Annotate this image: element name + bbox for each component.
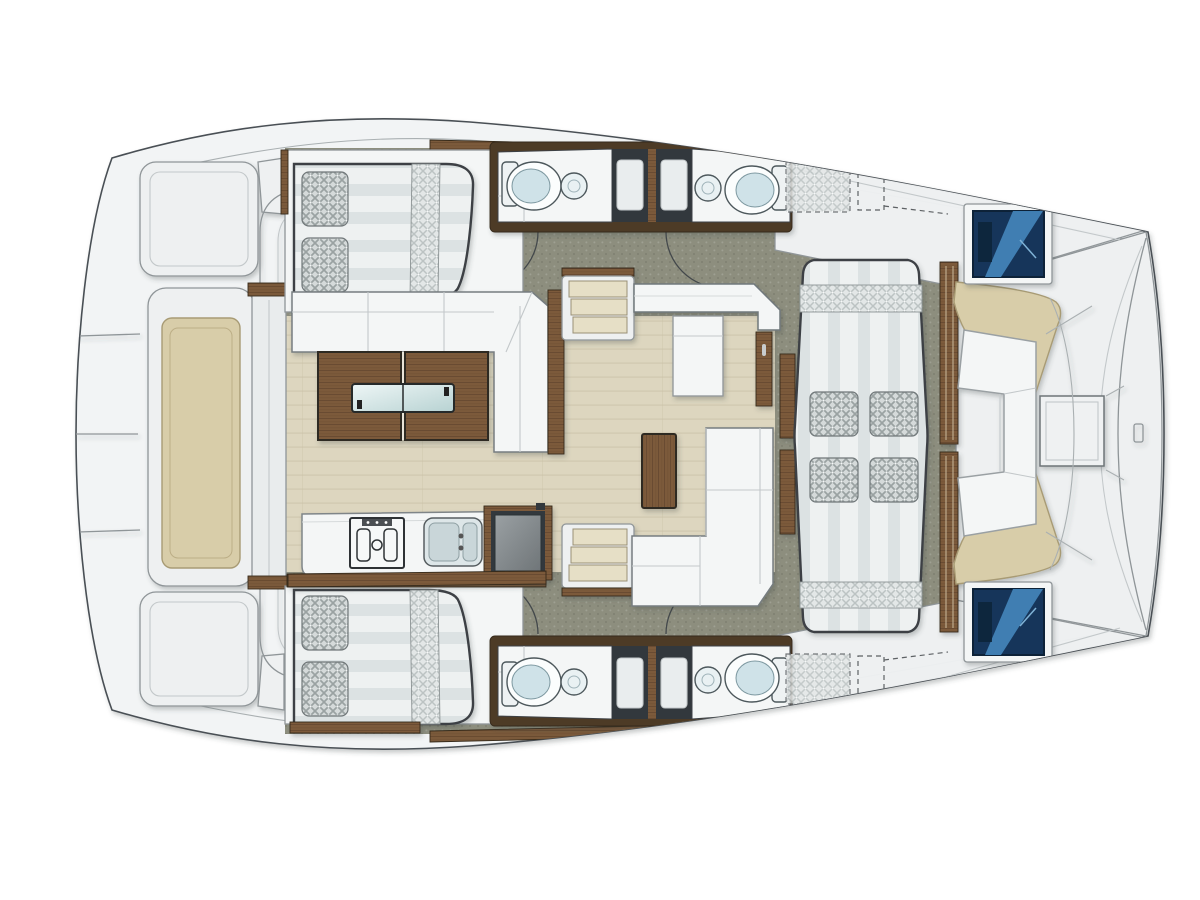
washbasin [561,669,587,695]
bed-base-trim [290,722,420,733]
washbasin [561,173,587,199]
companionway-steps-port [562,268,634,340]
teak-slat [780,354,795,438]
fridge [484,503,552,580]
shower-tray [661,160,687,210]
cushion [810,392,858,436]
door-handle [762,344,766,356]
pillow [302,238,348,292]
transom-step-top [140,162,258,276]
bed-runner [410,590,440,724]
bathroom-stbd-fwd [656,646,790,719]
stove [350,518,404,568]
shower-tray [661,658,687,708]
bow-table [1040,396,1104,466]
coffee-table [642,434,676,508]
nav-seat [673,316,723,396]
deck-hatch-port [964,204,1052,284]
bed-runner [410,164,440,298]
bathroom-port-fwd [656,149,790,222]
cockpit-wedge-top [258,158,284,214]
transom-step-bottom [140,592,258,706]
pillow [302,172,348,226]
bathroom-stbd-aft [498,646,648,719]
dining-table [318,352,488,440]
glass-handle [357,400,362,409]
galley [288,503,552,587]
teak-slat [940,452,958,632]
pillow [302,662,348,716]
galley-trim [288,571,546,587]
cushion [810,458,858,502]
bathroom-port-aft [498,149,648,222]
teak-slat [780,450,795,534]
pillow [302,596,348,650]
glass-handle [444,387,449,396]
floor-plan-canvas [0,0,1200,900]
fwd-bulkhead-panel [756,332,772,406]
deck-hatch-starboard [964,582,1052,662]
bathroom-divider [648,149,656,222]
washbasin [695,667,721,693]
shower-tray [617,658,643,708]
aft-cabin-port [281,150,523,312]
galley-sink [424,518,482,566]
catamaran-floor-plan [0,0,1200,900]
dinette [292,290,564,454]
cushion [870,458,918,502]
shower-tray [617,160,643,210]
bathroom-divider [648,646,656,719]
companionway-steps-starboard [562,524,634,596]
cushion [870,392,918,436]
washbasin [695,175,721,201]
sunbed-foot-band [800,582,922,608]
cockpit-wedge-bottom [258,654,284,710]
sunbed-head-band [800,285,922,312]
tender-pad [162,318,240,568]
